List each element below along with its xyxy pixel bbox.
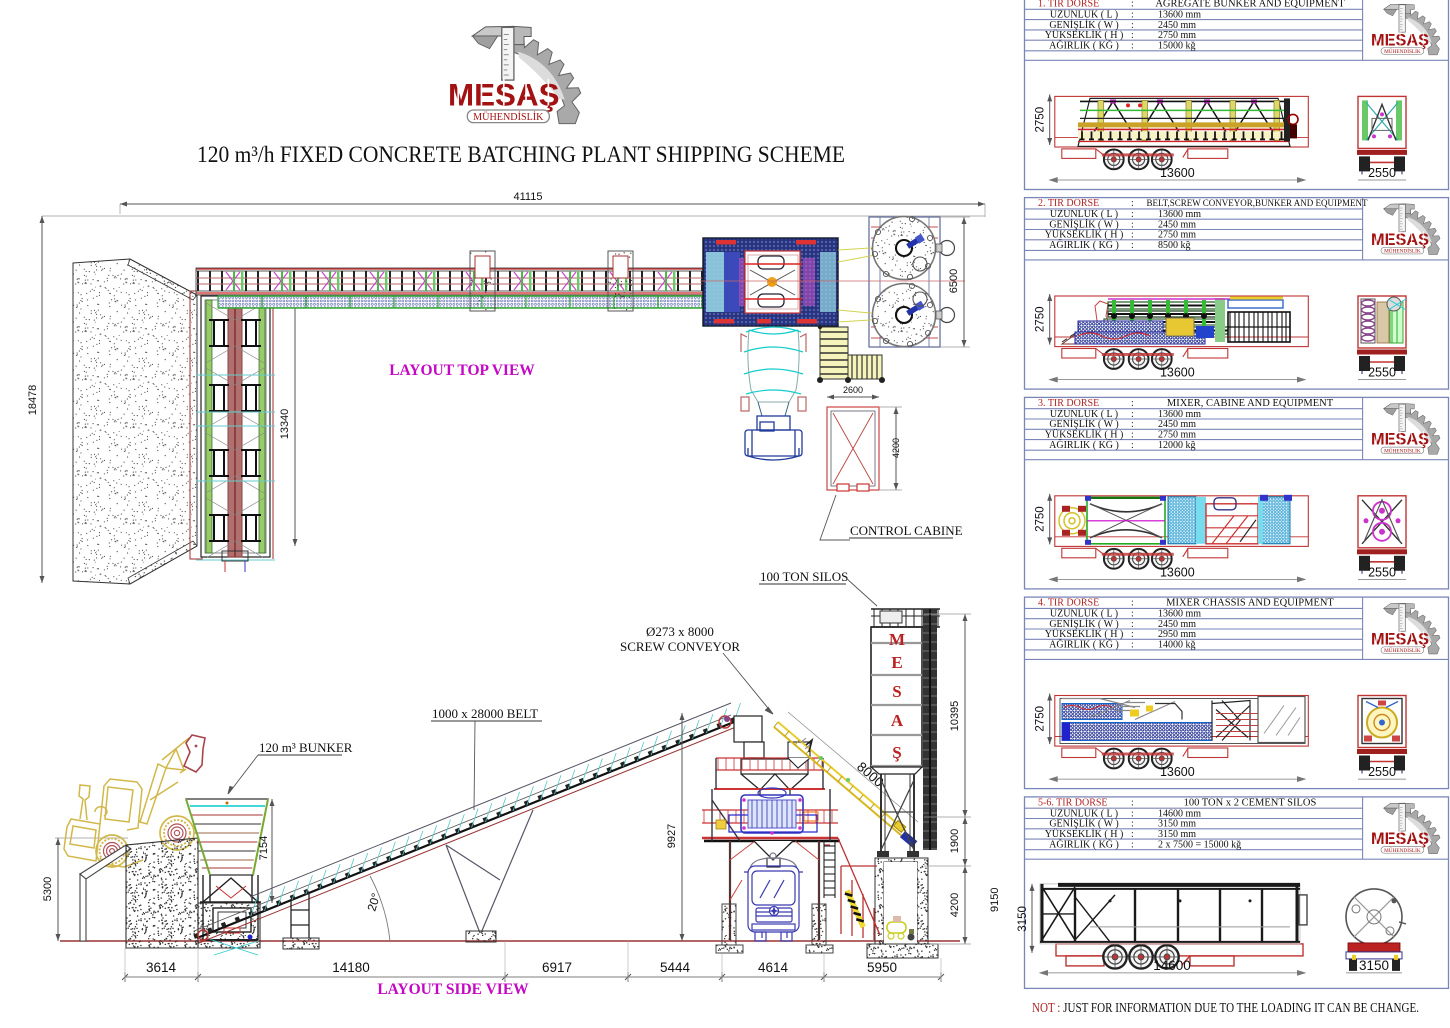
svg-text:2550: 2550 bbox=[1368, 366, 1396, 380]
svg-text:3150: 3150 bbox=[1359, 958, 1389, 973]
svg-text:15000 kğ: 15000 kğ bbox=[1158, 40, 1196, 51]
svg-text:14000 kğ: 14000 kğ bbox=[1158, 640, 1196, 651]
svg-text:4. TIR DORSE: 4. TIR DORSE bbox=[1038, 598, 1099, 609]
svg-text:2550: 2550 bbox=[1368, 765, 1396, 779]
svg-text:9150: 9150 bbox=[989, 888, 1001, 912]
svg-text:6500: 6500 bbox=[948, 269, 960, 293]
svg-text:13600: 13600 bbox=[1160, 565, 1195, 579]
svg-text::: : bbox=[1131, 598, 1134, 609]
svg-text:2600: 2600 bbox=[843, 385, 863, 395]
svg-text:AĞIRLIK ( KĞ ): AĞIRLIK ( KĞ ) bbox=[1049, 39, 1119, 51]
svg-text:7154: 7154 bbox=[258, 836, 270, 860]
svg-text:2750: 2750 bbox=[1035, 706, 1047, 732]
svg-text:5950: 5950 bbox=[867, 960, 897, 975]
svg-text:2. TIR DORSE: 2. TIR DORSE bbox=[1038, 198, 1099, 209]
svg-text::: : bbox=[1131, 640, 1134, 651]
svg-text:CONTROL CABINE: CONTROL CABINE bbox=[850, 523, 963, 538]
svg-text:MIXER, CABINE AND EQUIPMENT: MIXER, CABINE AND EQUIPMENT bbox=[1167, 398, 1334, 409]
svg-text:10395: 10395 bbox=[949, 701, 961, 732]
svg-text:YÜKSEKLİK ( H ): YÜKSEKLİK ( H ) bbox=[1045, 628, 1124, 640]
svg-text:3. TIR DORSE: 3. TIR DORSE bbox=[1038, 398, 1099, 409]
svg-text:MIXER CHASSIS AND EQUIPMENT: MIXER CHASSIS AND EQUIPMENT bbox=[1166, 598, 1334, 609]
svg-text:14600: 14600 bbox=[1153, 958, 1191, 973]
svg-text:2 x 7500 = 15000 kğ: 2 x 7500 = 15000 kğ bbox=[1158, 839, 1241, 850]
svg-text:2550: 2550 bbox=[1368, 565, 1396, 579]
svg-text::: : bbox=[1131, 40, 1134, 51]
svg-text:NOT : JUST FOR INFORMATION DUE: NOT : JUST FOR INFORMATION DUE TO THE LO… bbox=[1032, 1000, 1419, 1015]
svg-text:AĞIRLIK ( KĞ ): AĞIRLIK ( KĞ ) bbox=[1049, 439, 1119, 451]
svg-text:120 m³ BUNKER: 120 m³ BUNKER bbox=[259, 740, 353, 755]
svg-text:3614: 3614 bbox=[146, 960, 177, 975]
svg-text:AGREGATE BUNKER AND EQUIPMENT: AGREGATE BUNKER AND EQUIPMENT bbox=[1155, 0, 1345, 10]
svg-text:4614: 4614 bbox=[758, 960, 789, 975]
svg-text:9927: 9927 bbox=[666, 824, 678, 848]
svg-text:LAYOUT SIDE VIEW: LAYOUT SIDE VIEW bbox=[377, 981, 529, 998]
svg-text:GENİŞLİK ( W ): GENİŞLİK ( W ) bbox=[1049, 618, 1118, 630]
svg-text:E: E bbox=[891, 653, 902, 672]
svg-text:14180: 14180 bbox=[332, 960, 370, 975]
svg-text:13600: 13600 bbox=[1160, 765, 1195, 779]
svg-text:13340: 13340 bbox=[279, 409, 291, 440]
svg-text:M: M bbox=[889, 630, 905, 649]
svg-text:5444: 5444 bbox=[660, 960, 691, 975]
svg-text:YÜKSEKLİK ( H ): YÜKSEKLİK ( H ) bbox=[1045, 229, 1124, 241]
svg-text:6917: 6917 bbox=[542, 960, 572, 975]
svg-text:5-6. TIR DORSE: 5-6. TIR DORSE bbox=[1038, 798, 1108, 809]
svg-text::: : bbox=[1131, 0, 1134, 10]
svg-text:YÜKSEKLİK ( H ): YÜKSEKLİK ( H ) bbox=[1045, 429, 1124, 441]
svg-text:A: A bbox=[891, 711, 904, 730]
svg-text::: : bbox=[1131, 198, 1134, 209]
svg-text:13600: 13600 bbox=[1160, 366, 1195, 380]
svg-text:2750: 2750 bbox=[1035, 307, 1047, 333]
svg-text:GENİŞLİK ( W ): GENİŞLİK ( W ) bbox=[1049, 818, 1118, 830]
svg-text:YÜKSEKLİK ( H ): YÜKSEKLİK ( H ) bbox=[1045, 828, 1124, 840]
svg-text:GENİŞLİK ( W ): GENİŞLİK ( W ) bbox=[1049, 418, 1118, 430]
svg-text:GENİŞLİK ( W ): GENİŞLİK ( W ) bbox=[1049, 19, 1118, 31]
svg-text:41115: 41115 bbox=[514, 191, 543, 203]
svg-text:YÜKSEKLİK ( H ): YÜKSEKLİK ( H ) bbox=[1045, 29, 1124, 41]
svg-text::: : bbox=[1131, 440, 1134, 451]
svg-text:SCREW CONVEYOR: SCREW CONVEYOR bbox=[620, 639, 740, 654]
svg-text:18478: 18478 bbox=[27, 385, 39, 416]
svg-text::: : bbox=[1131, 839, 1134, 850]
svg-text::: : bbox=[1131, 798, 1134, 809]
svg-text:AĞIRLIK ( KĞ ): AĞIRLIK ( KĞ ) bbox=[1049, 239, 1119, 251]
svg-text:100 TON x 2 CEMENT SILOS: 100 TON x 2 CEMENT SILOS bbox=[1184, 798, 1317, 809]
svg-text:S: S bbox=[892, 682, 901, 701]
svg-text:5300: 5300 bbox=[42, 877, 54, 901]
svg-text::: : bbox=[1131, 398, 1134, 409]
svg-text:120 m³/h FIXED CONCRETE BATCHI: 120 m³/h FIXED CONCRETE BATCHING PLANT S… bbox=[197, 142, 845, 167]
svg-text:12000 kğ: 12000 kğ bbox=[1158, 440, 1196, 451]
svg-text:2750: 2750 bbox=[1035, 107, 1047, 133]
svg-text:BELT,SCREW CONVEYOR,BUNKER AND: BELT,SCREW CONVEYOR,BUNKER AND EQUIPMENT bbox=[1146, 198, 1368, 208]
svg-text:Ø273 x 8000: Ø273 x 8000 bbox=[646, 624, 714, 639]
svg-text::: : bbox=[1131, 240, 1134, 251]
svg-text:100 TON SILOS: 100 TON SILOS bbox=[760, 569, 848, 584]
svg-text:4200: 4200 bbox=[891, 438, 901, 458]
svg-text:2550: 2550 bbox=[1368, 166, 1396, 180]
svg-text:2750: 2750 bbox=[1035, 506, 1047, 532]
svg-text:3150: 3150 bbox=[1017, 906, 1029, 932]
svg-text:AĞIRLIK ( KĞ ): AĞIRLIK ( KĞ ) bbox=[1049, 838, 1119, 850]
svg-text:GENİŞLİK ( W ): GENİŞLİK ( W ) bbox=[1049, 218, 1118, 230]
svg-text:1900: 1900 bbox=[949, 829, 961, 853]
svg-text:1. TIR DORSE: 1. TIR DORSE bbox=[1038, 0, 1099, 10]
svg-text:Ş: Ş bbox=[892, 743, 901, 762]
svg-text:AĞIRLIK ( KĞ ): AĞIRLIK ( KĞ ) bbox=[1049, 639, 1119, 651]
svg-text:LAYOUT TOP VIEW: LAYOUT TOP VIEW bbox=[389, 362, 535, 379]
svg-text:8500 kğ: 8500 kğ bbox=[1158, 240, 1191, 251]
svg-text:1000 x 28000 BELT: 1000 x 28000 BELT bbox=[432, 706, 538, 721]
svg-text:4200: 4200 bbox=[949, 893, 961, 917]
svg-text:13600: 13600 bbox=[1160, 166, 1195, 180]
